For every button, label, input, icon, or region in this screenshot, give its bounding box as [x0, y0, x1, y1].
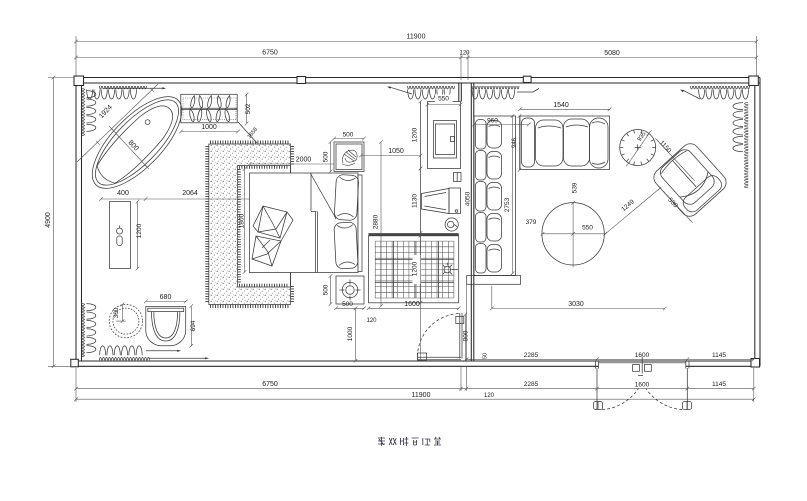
- svg-text:1130: 1130: [412, 194, 419, 208]
- svg-text:1145: 1145: [712, 381, 726, 388]
- svg-text:3030: 3030: [568, 301, 584, 308]
- svg-text:6750: 6750: [262, 50, 278, 57]
- svg-text:1600: 1600: [635, 381, 650, 388]
- svg-text:550: 550: [438, 96, 449, 103]
- svg-text:500: 500: [323, 284, 330, 295]
- svg-text:1150: 1150: [658, 139, 673, 154]
- svg-text:539: 539: [572, 182, 579, 193]
- svg-text:300: 300: [113, 307, 120, 318]
- svg-text:1800: 1800: [239, 213, 246, 228]
- svg-text:500: 500: [342, 301, 353, 308]
- svg-text:1000: 1000: [201, 124, 217, 131]
- svg-text:5080: 5080: [604, 50, 620, 57]
- svg-text:550: 550: [582, 225, 593, 232]
- svg-text:2880: 2880: [373, 214, 380, 229]
- svg-text:530: 530: [666, 197, 679, 210]
- svg-text:800: 800: [127, 139, 140, 152]
- svg-text:502: 502: [245, 103, 252, 114]
- svg-text:1658: 1658: [246, 127, 258, 140]
- svg-text:1540: 1540: [553, 102, 569, 109]
- svg-text:800: 800: [462, 330, 469, 341]
- svg-text:500: 500: [343, 131, 354, 138]
- svg-text:1600: 1600: [404, 301, 420, 308]
- svg-text:960: 960: [487, 117, 498, 124]
- svg-text:1924: 1924: [98, 104, 114, 120]
- svg-text:2753: 2753: [504, 197, 511, 212]
- svg-text:2064: 2064: [182, 190, 198, 197]
- svg-text:379: 379: [526, 219, 537, 226]
- svg-text:935: 935: [637, 131, 648, 143]
- svg-text:1200: 1200: [412, 127, 419, 142]
- svg-text:2285: 2285: [524, 352, 539, 359]
- svg-text:11900: 11900: [412, 392, 431, 399]
- svg-text:946: 946: [512, 137, 518, 148]
- svg-text:120: 120: [484, 393, 495, 399]
- svg-text:694: 694: [190, 320, 197, 331]
- svg-text:11900: 11900: [407, 34, 426, 41]
- svg-text:4900: 4900: [45, 212, 52, 228]
- svg-text:1200: 1200: [412, 261, 419, 276]
- svg-text:2285: 2285: [524, 381, 539, 388]
- svg-text:120: 120: [367, 318, 378, 324]
- svg-text:4050: 4050: [465, 191, 472, 206]
- svg-text:1050: 1050: [388, 148, 404, 155]
- svg-text:1000: 1000: [347, 326, 354, 341]
- svg-text:680: 680: [160, 294, 172, 301]
- svg-text:6750: 6750: [262, 381, 278, 388]
- svg-text:500: 500: [323, 151, 330, 162]
- svg-text:400: 400: [117, 190, 129, 197]
- svg-text:50: 50: [483, 353, 489, 359]
- svg-text:1249: 1249: [620, 198, 636, 213]
- svg-text:2000: 2000: [296, 157, 312, 164]
- svg-text:1200: 1200: [136, 223, 143, 238]
- svg-text:1145: 1145: [712, 352, 726, 359]
